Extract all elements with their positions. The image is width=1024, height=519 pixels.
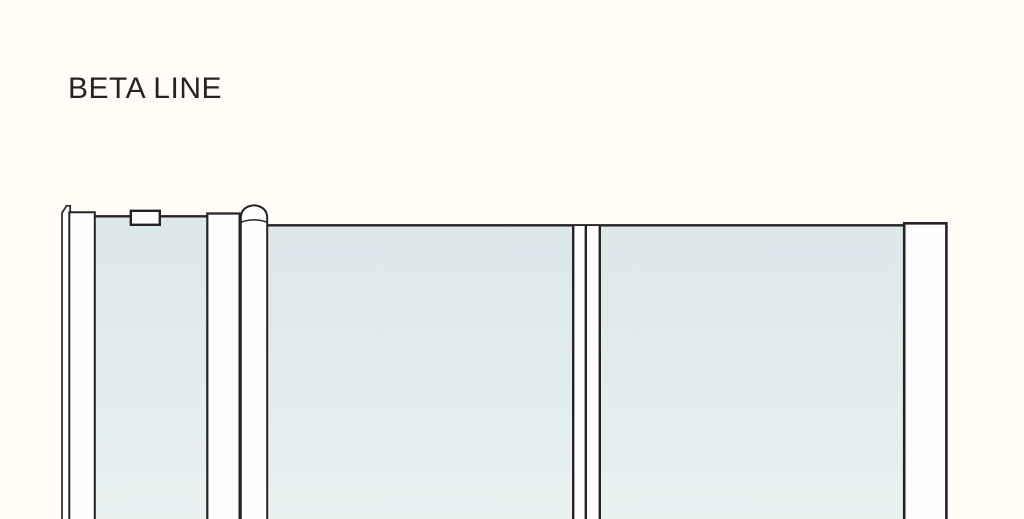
glass-panel-center (267, 224, 573, 519)
glass-panel-right (599, 224, 904, 519)
door-profile-vertical (207, 214, 239, 519)
glass-clamp (131, 211, 160, 225)
door-profile-dome-cap (241, 205, 267, 519)
beta-line-elevation-drawing (0, 0, 1024, 519)
glass-panel-left (94, 215, 208, 519)
page: BETA LINE (0, 0, 1024, 519)
wall-profile-left (69, 212, 95, 519)
wall-profile-right (904, 223, 946, 519)
